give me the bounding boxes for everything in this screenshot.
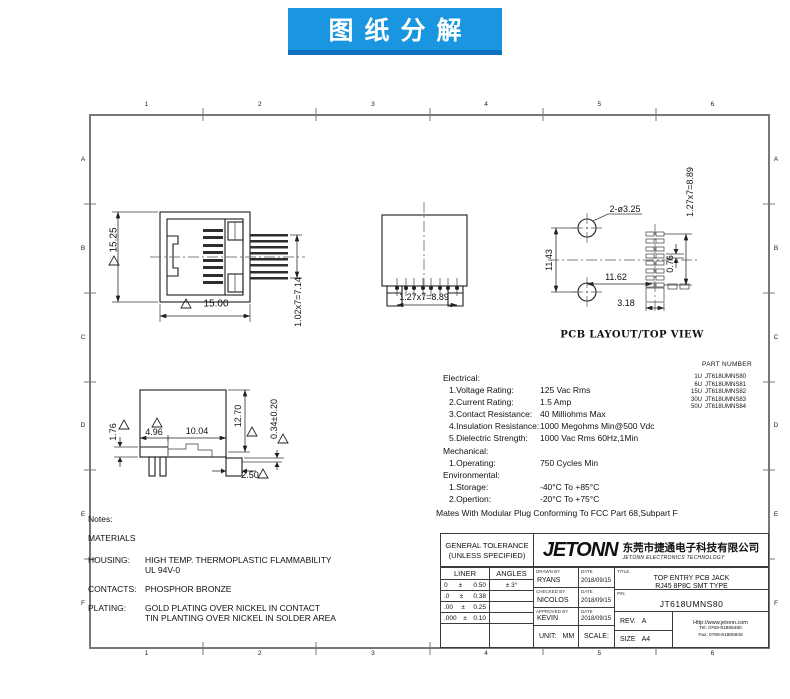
border-column-numbers-top: 123456 bbox=[90, 101, 769, 111]
general-tolerance-line1: GENERAL TOLERANCE bbox=[441, 541, 533, 551]
zone-letter: C bbox=[771, 293, 781, 382]
zone-letter: C bbox=[78, 293, 88, 382]
dim-pcb-hole-to-pad: 11.62 bbox=[605, 272, 627, 282]
rev-value: A bbox=[642, 618, 647, 625]
zone-number: 3 bbox=[316, 101, 429, 111]
spec-row: 2.Opertion:-20°C To +75°C bbox=[436, 493, 768, 505]
tol-value: 0.10 bbox=[473, 615, 486, 622]
part-number-table: PART NUMBER 1UJT618UMNS80 6UJT618UMNS81 … bbox=[686, 361, 768, 412]
zone-letter: E bbox=[771, 470, 781, 559]
pn-value: JT618UMNS80 bbox=[615, 599, 768, 609]
pn-code: 6U bbox=[686, 382, 702, 390]
tolerance-empty-cell bbox=[440, 623, 490, 648]
spec-label: 2.Opertion: bbox=[436, 493, 540, 505]
tol-pm: ± bbox=[463, 615, 467, 622]
scale-cell: SCALE:/ bbox=[578, 625, 615, 648]
notes-row-contacts: CONTACTS: PHOSPHOR BRONZE bbox=[88, 584, 400, 594]
zone-number: 5 bbox=[543, 101, 656, 111]
notes-line: HIGH TEMP. THERMOPLASTIC FLAMMABILITY bbox=[145, 555, 332, 565]
approved-date-cell: DATE2018/09/15 bbox=[578, 607, 615, 626]
notes-line: TIN PLANTING OVER NICKEL IN SOLDER AREA bbox=[145, 613, 336, 623]
zone-number: 2 bbox=[203, 101, 316, 111]
date-label: DATE bbox=[581, 589, 593, 594]
dim-front-pin-pitch: 1.02x7=7.14 bbox=[293, 277, 303, 327]
spec-value: 1.5 Amp bbox=[540, 396, 571, 408]
notes-title: Notes: bbox=[88, 514, 400, 524]
notes-label: PLATING: bbox=[88, 603, 145, 623]
zone-number: 1 bbox=[90, 101, 203, 111]
top-view bbox=[382, 202, 467, 306]
zone-letter: D bbox=[78, 381, 88, 470]
pn-label: P/N. bbox=[617, 591, 626, 596]
date-label: DATE bbox=[581, 609, 593, 614]
tol-pm: ± bbox=[459, 582, 463, 589]
spec-value: 1000 Vac Rms 60Hz,1Min bbox=[540, 432, 638, 444]
drawing-title-line1: TOP ENTRY PCB JACK bbox=[615, 575, 768, 583]
part-number-row: 50UJT618UMNS84 bbox=[686, 404, 768, 412]
zone-letter: A bbox=[771, 115, 781, 204]
dim-side-body-len: 10.04 bbox=[186, 426, 209, 436]
tol-nominal: .0 bbox=[444, 593, 449, 600]
date-label: DATE bbox=[581, 569, 593, 574]
zone-letter: E bbox=[78, 470, 88, 559]
drawn-by-value: RYANS bbox=[537, 577, 560, 584]
spec-heading-environmental: Environmental: bbox=[436, 469, 768, 481]
zone-letter: B bbox=[78, 204, 88, 293]
spec-value: -20°C To +75°C bbox=[540, 493, 599, 505]
notes-line: UL 94V-0 bbox=[145, 565, 180, 575]
notes-value: HIGH TEMP. THERMOPLASTIC FLAMMABILITYUL … bbox=[145, 555, 332, 575]
jetonn-logo: JETONN bbox=[543, 539, 618, 562]
pn-cell: P/N. JT618UMNS80 bbox=[614, 589, 769, 612]
border-row-letters-right: ABCDEF bbox=[771, 115, 781, 648]
company-name-cn: 东莞市捷通电子科技有限公司 bbox=[623, 540, 760, 555]
spec-value: 40 Milliohms Max bbox=[540, 408, 606, 420]
approved-by-label: APPROVED BY bbox=[536, 609, 568, 614]
checked-by-label: CHECKED BY bbox=[536, 589, 565, 594]
size-cell: SIZEA4 bbox=[614, 630, 673, 648]
spec-row: 1.Storage:-40°C To +85°C bbox=[436, 481, 768, 493]
zone-number: 4 bbox=[430, 101, 543, 111]
spec-label: 1.Storage: bbox=[436, 481, 540, 493]
notes-materials: MATERIALS bbox=[88, 533, 400, 543]
zone-number: 4 bbox=[430, 650, 543, 660]
checked-by-value: NICOLOS bbox=[537, 597, 569, 604]
notes-line: GOLD PLATING OVER NICKEL IN CONTACT bbox=[145, 603, 320, 613]
checked-date-cell: DATE2018/09/15 bbox=[578, 587, 615, 608]
drawn-by-label: DRAWN BY bbox=[536, 569, 560, 574]
size-label: SIZE bbox=[620, 636, 636, 643]
unit-value: MM bbox=[563, 633, 575, 640]
checked-by-cell: CHECKED BYNICOLOS bbox=[533, 587, 579, 608]
zone-number: 2 bbox=[203, 650, 316, 660]
part-number-row: 6UJT618UMNS81 bbox=[686, 382, 768, 390]
title-block: GENERAL TOLERANCE (UNLESS SPECIFIED) JET… bbox=[440, 533, 769, 648]
spec-label: 1.Voltage Rating: bbox=[436, 384, 540, 396]
tol-value: 0.38 bbox=[473, 593, 486, 600]
spec-label: 3.Contact Resistance: bbox=[436, 408, 540, 420]
spec-label: 4.Insulation Resistance: bbox=[436, 420, 540, 432]
spec-value: 125 Vac Rms bbox=[540, 384, 590, 396]
pn-code: 1U bbox=[686, 374, 702, 382]
zone-letter: D bbox=[771, 381, 781, 470]
zone-letter: F bbox=[78, 559, 88, 648]
spec-footnote: Mates With Modular Plug Conforming To FC… bbox=[436, 507, 768, 519]
tol-nominal: 0 bbox=[444, 582, 448, 589]
pn-code: 50U bbox=[686, 404, 702, 412]
date-value: 2018/09/15 bbox=[581, 616, 611, 622]
pn-value: JT618UMNS80 bbox=[705, 374, 746, 382]
dim-pcb-holes: 2-ø3.25 bbox=[609, 204, 640, 214]
pn-code: 30U bbox=[686, 397, 702, 405]
logo-cell: JETONN 东莞市捷通电子科技有限公司 JETONN ELECTRONICS … bbox=[533, 533, 769, 567]
spec-label: 5.Dielectric Strength: bbox=[436, 432, 540, 444]
part-number-row: 1UJT618UMNS80 bbox=[686, 374, 768, 382]
pn-code: 15U bbox=[686, 389, 702, 397]
dim-front-width: 15.00 bbox=[203, 299, 228, 310]
drawn-by-cell: DRAWN BYRYANS bbox=[533, 567, 579, 588]
dim-pcb-pad-pitch: 1.27x7=8.89 bbox=[685, 167, 695, 217]
notes-block: Notes: MATERIALS HOUSING: HIGH TEMP. THE… bbox=[88, 514, 400, 632]
zone-number: 6 bbox=[656, 101, 769, 111]
dim-pcb-pad-width: 0.76 bbox=[665, 255, 675, 273]
tol-pm: ± bbox=[461, 604, 465, 611]
dim-front-height: 15.25 bbox=[109, 227, 120, 252]
zone-letter: A bbox=[78, 115, 88, 204]
zone-letter: F bbox=[771, 559, 781, 648]
part-number-title: PART NUMBER bbox=[686, 361, 768, 368]
drawing-title: TOP ENTRY PCB JACK RJ45 8P8C SMT TYPE bbox=[615, 575, 768, 590]
contact-cell: Http://www.jetonn.com Tel: 0769-81885480… bbox=[672, 611, 769, 648]
notes-label: CONTACTS: bbox=[88, 584, 145, 594]
spec-value: 750 Cycles Min bbox=[540, 457, 598, 469]
size-value: A4 bbox=[642, 636, 651, 643]
zone-number: 3 bbox=[316, 650, 429, 660]
tolerance-empty-cell bbox=[489, 623, 534, 648]
notes-value: GOLD PLATING OVER NICKEL IN CONTACTTIN P… bbox=[145, 603, 336, 623]
spec-label: 2.Current Rating: bbox=[436, 396, 540, 408]
dim-top-pin-pitch: 1.27x7=8.89 bbox=[399, 292, 449, 302]
spec-value: -40°C To +85°C bbox=[540, 481, 599, 493]
tol-pm: ± bbox=[460, 593, 464, 600]
notes-label: HOUSING: bbox=[88, 555, 145, 575]
notes-value: PHOSPHOR BRONZE bbox=[145, 584, 231, 594]
spec-value: 1000 Megohms Min@500 Vdc bbox=[540, 420, 654, 432]
pcb-view-title: PCB LAYOUT/TOP VIEW bbox=[560, 330, 703, 341]
zone-number: 5 bbox=[543, 650, 656, 660]
unit-cell: UNIT:MM bbox=[533, 625, 579, 648]
tol-nominal: .000 bbox=[444, 615, 457, 622]
general-tolerance-line2: (UNLESS SPECIFIED) bbox=[441, 551, 533, 561]
tol-value: 0.50 bbox=[473, 582, 486, 589]
page: 图纸分解 bbox=[0, 0, 790, 699]
general-tolerance-cell: GENERAL TOLERANCE (UNLESS SPECIFIED) bbox=[440, 533, 534, 567]
scale-label: SCALE: bbox=[584, 633, 609, 640]
dim-side-front-len: 4.96 bbox=[145, 427, 163, 437]
tol-value: 0.25 bbox=[473, 604, 486, 611]
dim-pcb-hole-span: 11.43 bbox=[544, 249, 554, 271]
border-row-letters-left: ABCDEF bbox=[78, 115, 88, 648]
title-label: TITLE. bbox=[617, 569, 631, 574]
dim-side-height: 12.70 bbox=[233, 405, 243, 428]
pn-value: JT618UMNS83 bbox=[705, 397, 746, 405]
spec-row: 1.Operating:750 Cycles Min bbox=[436, 457, 768, 469]
notes-row-plating: PLATING: GOLD PLATING OVER NICKEL IN CON… bbox=[88, 603, 400, 623]
rev-label: REV. bbox=[620, 618, 636, 625]
rev-cell: REV.A bbox=[614, 611, 673, 631]
zone-letter: B bbox=[771, 204, 781, 293]
pn-value: JT618UMNS84 bbox=[705, 404, 746, 412]
border-column-numbers-bottom: 123456 bbox=[90, 650, 769, 660]
tol-nominal: .00 bbox=[444, 604, 453, 611]
drawn-date-cell: DATE2018/09/15 bbox=[578, 567, 615, 588]
spec-heading-mechanical: Mechanical: bbox=[436, 445, 768, 457]
fax: Fax: 0769-81885948 bbox=[698, 633, 742, 640]
zone-number: 1 bbox=[90, 650, 203, 660]
zone-number: 6 bbox=[656, 650, 769, 660]
approved-by-value: KEVIN bbox=[537, 615, 558, 622]
pn-value: JT618UMNS82 bbox=[705, 389, 746, 397]
dim-side-front-height: 1.76 bbox=[108, 423, 118, 441]
spec-label: 1.Operating: bbox=[436, 457, 540, 469]
notes-row-housing: HOUSING: HIGH TEMP. THERMOPLASTIC FLAMMA… bbox=[88, 555, 400, 575]
part-number-row: 30UJT618UMNS83 bbox=[686, 397, 768, 405]
dim-side-standoff: 0.34±0.20 bbox=[269, 399, 279, 439]
title-cell: TITLE. TOP ENTRY PCB JACK RJ45 8P8C SMT … bbox=[614, 567, 769, 590]
dim-pcb-tab-width: 3.18 bbox=[617, 298, 635, 308]
spec-row: 5.Dielectric Strength:1000 Vac Rms 60Hz,… bbox=[436, 432, 768, 444]
spec-row: 4.Insulation Resistance:1000 Megohms Min… bbox=[436, 420, 768, 432]
approved-by-cell: APPROVED BYKEVIN bbox=[533, 607, 579, 626]
part-number-row: 15UJT618UMNS82 bbox=[686, 389, 768, 397]
company-name: 东莞市捷通电子科技有限公司 JETONN ELECTRONICS TECHNOL… bbox=[623, 540, 760, 561]
date-value: 2018/09/15 bbox=[581, 598, 611, 604]
dim-side-foot-len: 2.50 bbox=[241, 470, 259, 480]
company-name-en: JETONN ELECTRONICS TECHNOLOGY bbox=[623, 555, 760, 561]
unit-label: UNIT: bbox=[539, 633, 557, 640]
date-value: 2018/09/15 bbox=[581, 578, 611, 584]
pn-value: JT618UMNS81 bbox=[705, 382, 746, 390]
